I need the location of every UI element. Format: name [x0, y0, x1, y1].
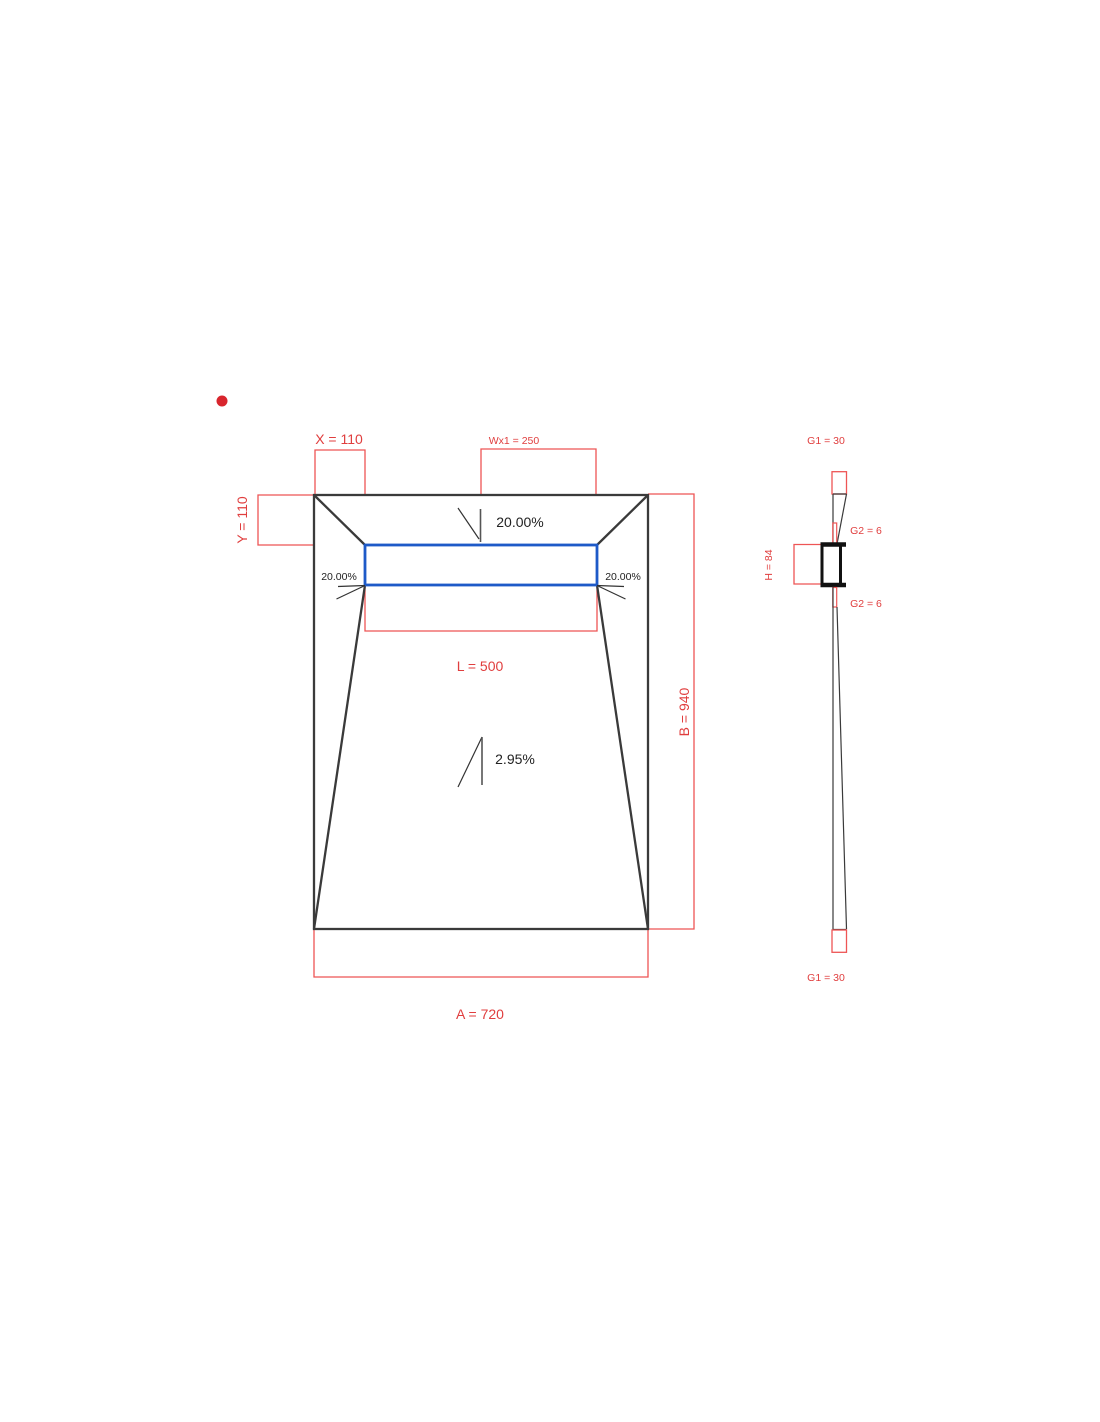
technical-drawing-canvas: X = 110 Wx1 = 250 Y = 110 L = 500 B = 94…: [0, 0, 1100, 1422]
fold-line-top-right: [597, 495, 648, 545]
dim-h-extension-lines: [794, 545, 822, 585]
dim-g1-top-label: G1 = 30: [807, 436, 845, 447]
dim-g1-bottom-box: [832, 930, 847, 952]
fold-line-top-left: [314, 495, 365, 545]
dim-g1-bottom-label: G1 = 30: [807, 973, 845, 984]
dim-h-label: H = 84: [764, 549, 775, 580]
dim-g2-top-bar: [833, 523, 837, 545]
slope-right-label: 20.00%: [605, 572, 641, 583]
fold-line-bottom-right: [597, 585, 648, 929]
slope-right-leader-lines: [597, 586, 626, 600]
profile-lower-wedge: [833, 587, 847, 930]
dim-l-extension-lines: [365, 586, 597, 631]
slope-top-label: 20.00%: [496, 515, 543, 529]
dim-l-label: L = 500: [457, 659, 504, 673]
dim-b-label: B = 940: [677, 688, 691, 737]
dim-a-label: A = 720: [456, 1007, 504, 1021]
dim-g2-top-label: G2 = 6: [850, 526, 882, 537]
dim-x-extension-lines: [315, 450, 365, 495]
dim-g2-bottom-label: G2 = 6: [850, 599, 882, 610]
dim-wx1-extension-lines: [481, 449, 596, 495]
dim-y-extension-lines: [258, 495, 314, 545]
drain-channel-rect: [365, 545, 597, 585]
slope-left-label: 20.00%: [321, 572, 357, 583]
dim-wx1-label: Wx1 = 250: [489, 436, 540, 447]
dim-y-label: Y = 110: [235, 496, 249, 543]
fold-line-bottom-left: [314, 585, 365, 929]
marker-dot: [217, 396, 228, 407]
drawing-linework: [0, 0, 1100, 1422]
dim-a-extension-lines: [314, 929, 648, 977]
dim-g1-top-box: [832, 472, 847, 494]
slope-left-leader-lines: [337, 586, 366, 600]
drain-body-profile: [822, 545, 841, 586]
profile-upper-wedge: [833, 494, 847, 545]
slope-top-leader-diagonal: [458, 508, 479, 539]
slope-main-leader-diagonal: [458, 737, 482, 787]
dim-x-label: X = 110: [315, 432, 363, 446]
slope-main-label: 2.95%: [495, 752, 535, 766]
